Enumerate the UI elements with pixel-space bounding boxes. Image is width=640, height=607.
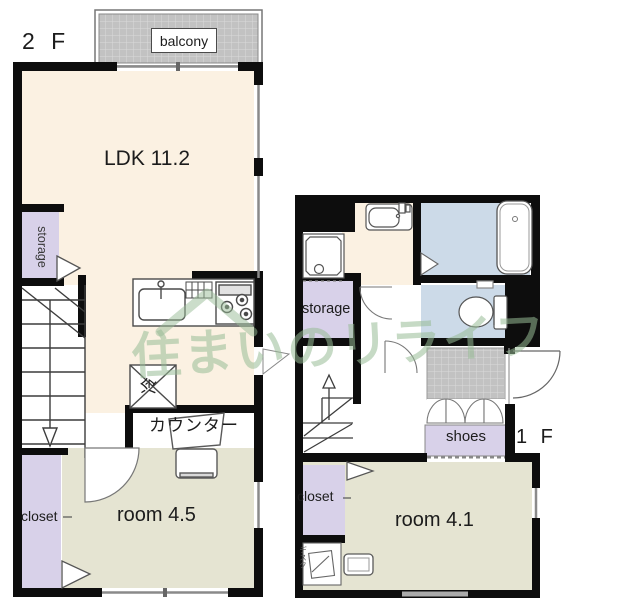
closet1f-label: closet (297, 489, 334, 503)
bathtub-icon (497, 201, 532, 274)
desk1f-icon (303, 543, 341, 585)
balcony-label: balcony (151, 28, 217, 53)
desk1f-label: デスク (299, 546, 307, 569)
closet2f-label: closet (21, 509, 58, 523)
fridge-label: 冷 (141, 377, 158, 394)
floor-plan: 2 F balcony LDK 11.2 storage 冷 カウンター clo… (0, 0, 640, 607)
shoes-label: shoes (425, 429, 507, 444)
room41-label: room 4.1 (395, 510, 474, 530)
ldk-room-label: LDK 11.2 (104, 148, 190, 169)
floor1-label: 1 F (516, 427, 557, 447)
counter-label: カウンター (149, 417, 239, 434)
shoe-closet-doors (427, 399, 505, 423)
storage2f-label: storage (34, 215, 48, 279)
chair1f-icon (344, 554, 373, 575)
floor2-label: 2 F (22, 30, 70, 53)
staircase-1f (303, 375, 353, 452)
vanity-sink-icon (366, 203, 412, 230)
room45-label: room 4.5 (117, 505, 196, 525)
storage1f-label: storage (302, 302, 350, 317)
floor1-unit (295, 195, 560, 598)
laundry-pan-icon (303, 234, 344, 281)
